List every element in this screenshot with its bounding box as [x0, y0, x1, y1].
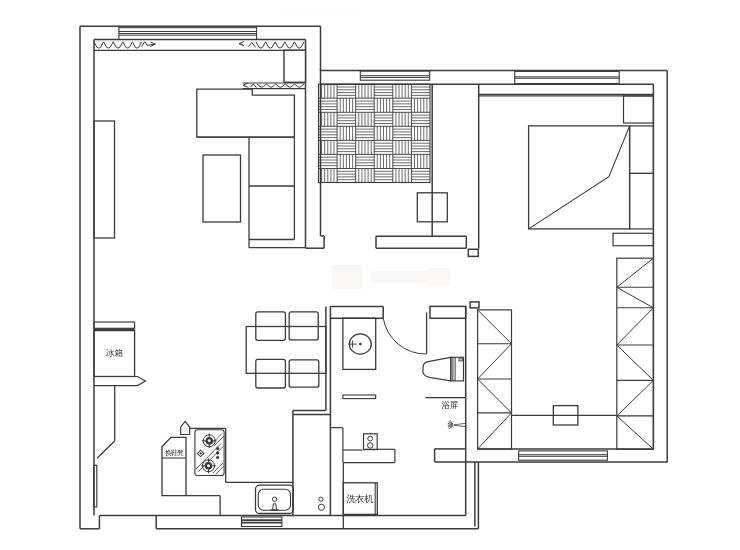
svg-text:换鞋凳: 换鞋凳 [165, 449, 184, 457]
svg-text:冰箱: 冰箱 [106, 348, 124, 358]
svg-text:浴屏: 浴屏 [441, 400, 459, 410]
svg-text:洗衣机: 洗衣机 [346, 494, 374, 504]
